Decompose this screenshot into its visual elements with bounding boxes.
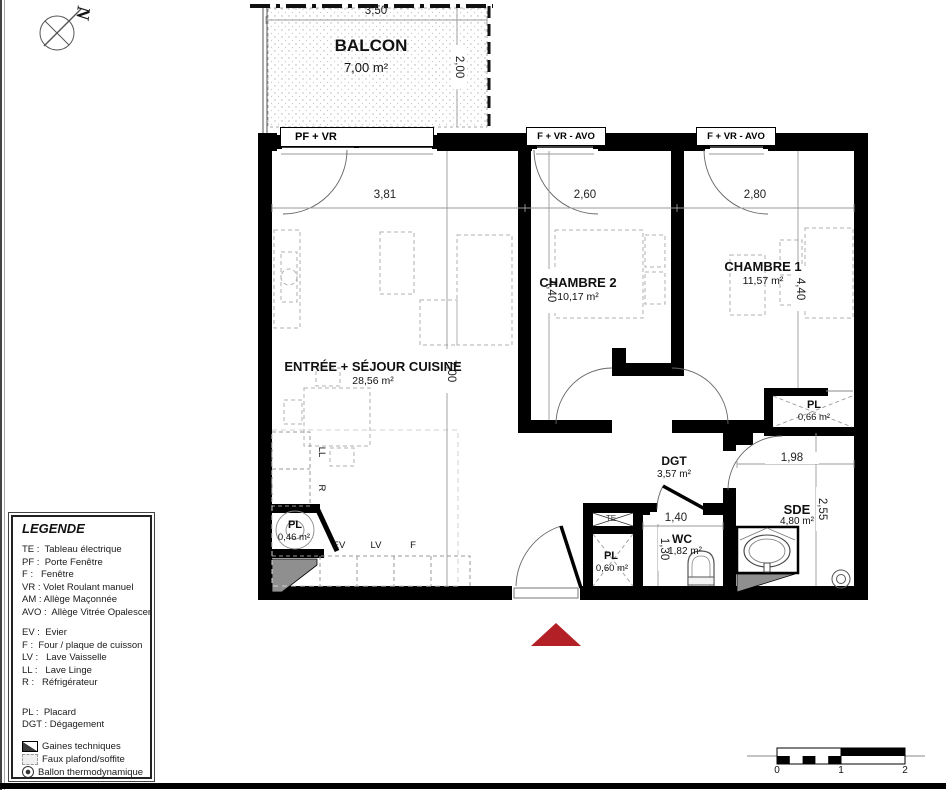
legend-entry: R : Réfrigérateur: [22, 677, 150, 690]
legend-entry: F : Fenêtre: [22, 569, 150, 582]
faux-plafond-icon: [22, 754, 38, 765]
dim-closet-line: 1,98: [765, 452, 819, 464]
dim-bedroom2-width: 2,60: [560, 189, 610, 201]
ballon-icon: [22, 766, 34, 778]
legend-symbol-text: Faux plafond/soffite: [42, 753, 125, 766]
room-bedroom2-area: 10,17 m²: [518, 292, 638, 303]
legend-entry: EV : Evier: [22, 627, 150, 640]
gaines-icon: [22, 741, 38, 752]
entrance-threshold: [514, 588, 578, 598]
dishwasher-label: LV: [361, 541, 391, 551]
legend-symbol-row: Gaines techniques: [22, 740, 150, 753]
dim-balcony-depth: 2,00: [453, 45, 465, 89]
scale-label-1: 1: [831, 766, 851, 777]
legend-entry: TE : Tableau électrique: [22, 544, 150, 557]
room-shower-name: SDE: [767, 503, 827, 517]
closet-bedroom1-area: 0,66 m²: [789, 413, 839, 423]
balcony-name: BALCON: [310, 37, 432, 55]
entrance-arrow: [531, 623, 581, 646]
electrical-panel-label: TE: [596, 515, 626, 523]
closet-hall-area: 0,60 m²: [587, 564, 637, 574]
room-wc-name: WC: [652, 533, 712, 546]
legend-inner: LEGENDE TE : Tableau électrique PF : Por…: [11, 515, 152, 779]
room-hallway-name: DGT: [644, 455, 704, 468]
sink-label: EV: [324, 541, 354, 551]
legend-entry: AVO : Allège Vitrée Opalescent: [22, 607, 150, 620]
closet-hall-name: PL: [586, 551, 636, 563]
room-living-name: ENTRÉE + SÉJOUR CUISINE: [283, 360, 463, 374]
legend-entry: LL : Lave Linge: [22, 665, 150, 678]
legend-entry: LV : Lave Vaisselle: [22, 652, 150, 665]
room-wc-area: 1,82 m²: [655, 547, 715, 558]
window-label-pf-vr: PF + VR: [280, 127, 434, 147]
legend-symbol-text: Ballon thermodynamique: [38, 766, 143, 779]
legend-box: LEGENDE TE : Tableau électrique PF : Por…: [8, 512, 155, 782]
dim-living-width: 3,81: [355, 189, 415, 201]
window-label-ch2: F + VR - AVO: [526, 127, 606, 146]
room-shower-area: 4,80 m²: [767, 517, 827, 528]
legend-symbol-row: Faux plafond/soffite: [22, 753, 150, 766]
room-bedroom1-name: CHAMBRE 1: [703, 260, 823, 274]
room-bedroom2-name: CHAMBRE 2: [518, 276, 638, 290]
dim-bedroom1-width: 2,80: [730, 189, 780, 201]
dim-balcony-width: 3,50: [350, 5, 402, 17]
scale-label-2: 2: [895, 766, 915, 777]
fridge-label: R: [316, 473, 326, 503]
legend-entry: VR : Volet Roulant manuel: [22, 582, 150, 595]
legend-title: LEGENDE: [22, 521, 150, 536]
oven-label: F: [398, 541, 428, 551]
room-hallway-area: 3,57 m²: [644, 470, 704, 481]
closet-bedroom1-name: PL: [789, 400, 839, 412]
room-living-area: 28,56 m²: [313, 376, 433, 387]
balcony-area: 7,00 m²: [310, 61, 422, 75]
legend-entry: DGT : Dégagement: [22, 719, 150, 732]
scale-bar: [747, 748, 925, 764]
legend-symbol-text: Gaines techniques: [42, 740, 121, 753]
scale-label-0: 0: [767, 766, 787, 777]
dim-wc-width: 1,40: [650, 512, 702, 524]
washer-label: LL: [316, 437, 326, 467]
floor-plan-sheet: N BALCON 7,00 m² PF + VR F + VR - AVO F …: [0, 0, 946, 790]
legend-entry: PL : Placard: [22, 707, 150, 720]
legend-entry: F : Four / plaque de cuisson: [22, 640, 150, 653]
closet-living-name: PL: [270, 520, 320, 532]
closet-living-area: 0,46 m²: [269, 533, 319, 543]
window-label-ch1: F + VR - AVO: [696, 127, 776, 146]
legend-symbol-row: Ballon thermodynamique: [22, 766, 150, 779]
legend-entry: PF : Porte Fenêtre: [22, 557, 150, 570]
water-heater: [832, 570, 850, 588]
legend-entry: AM : Allège Maçonnée: [22, 594, 150, 607]
room-bedroom1-area: 11,57 m²: [703, 276, 823, 287]
north-letter: N: [70, 0, 93, 28]
vanity-sink: [737, 527, 798, 573]
